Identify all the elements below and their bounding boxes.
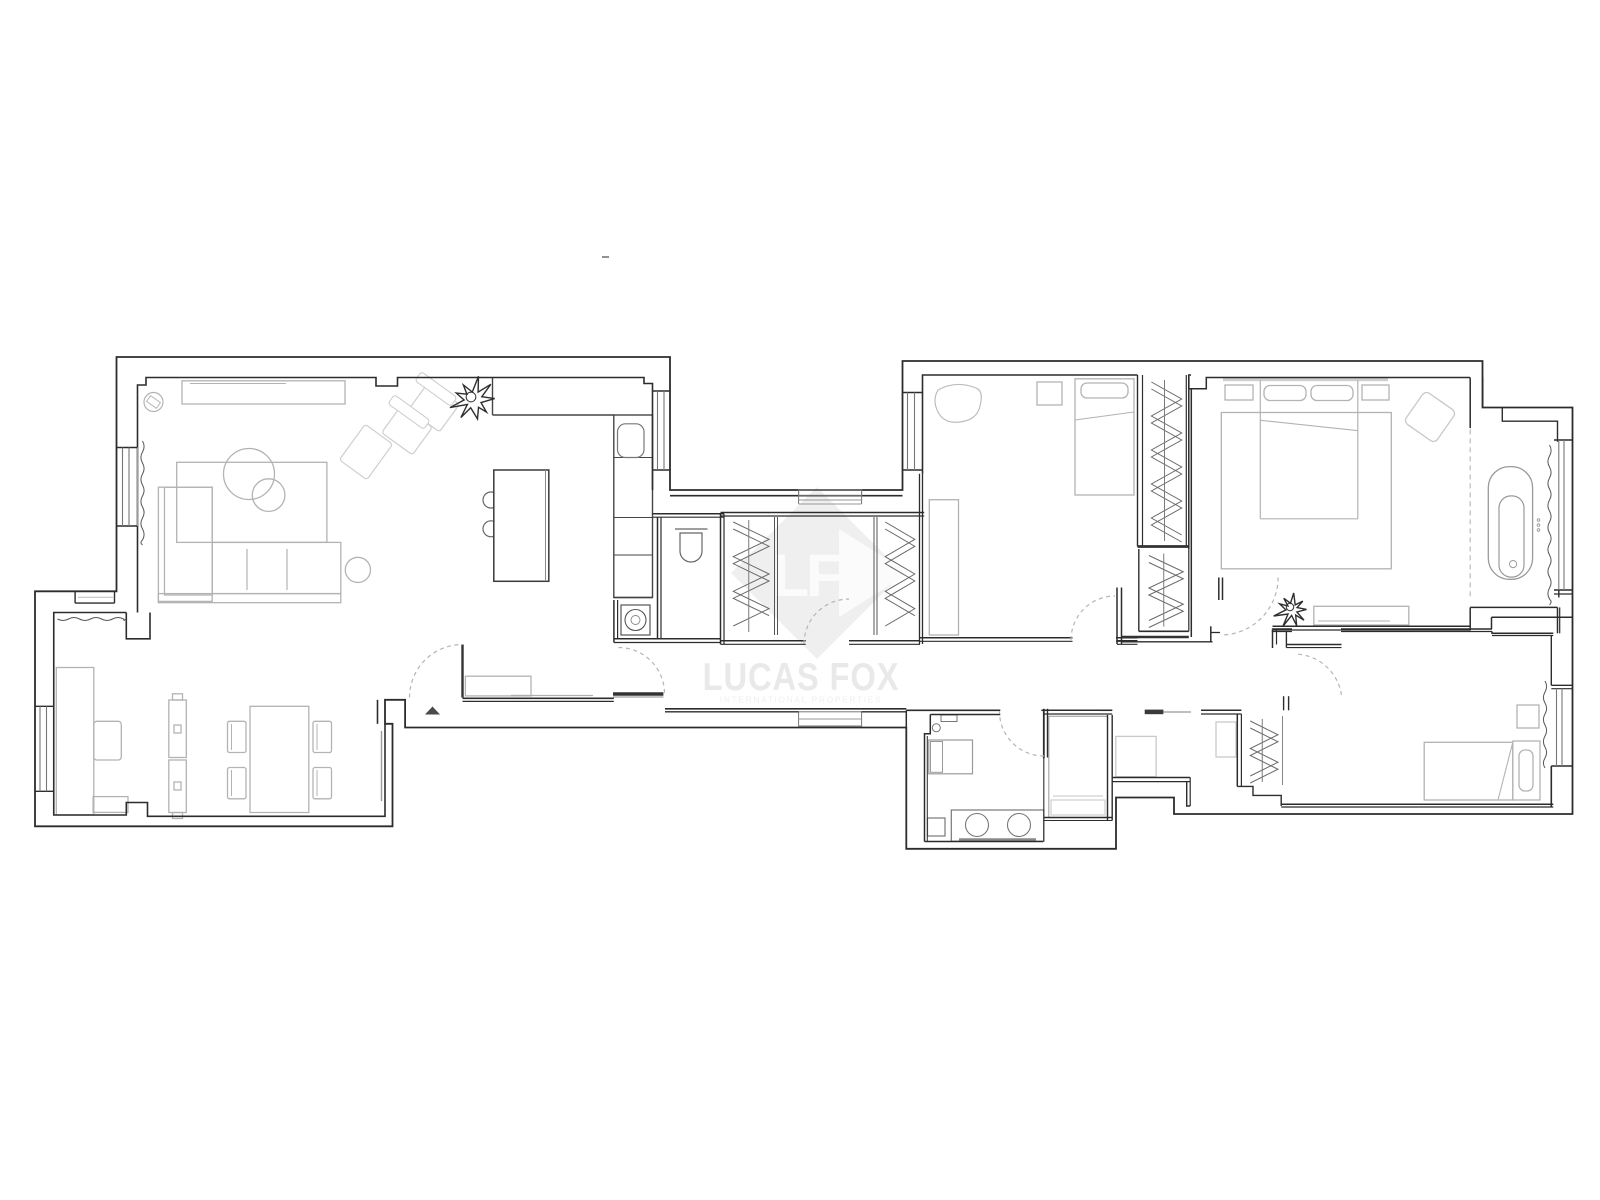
svg-text:INTERNATIONAL PROPERTIES: INTERNATIONAL PROPERTIES — [720, 695, 882, 705]
svg-text:LF: LF — [772, 542, 841, 609]
svg-text:LUCAS FOX: LUCAS FOX — [703, 654, 900, 698]
